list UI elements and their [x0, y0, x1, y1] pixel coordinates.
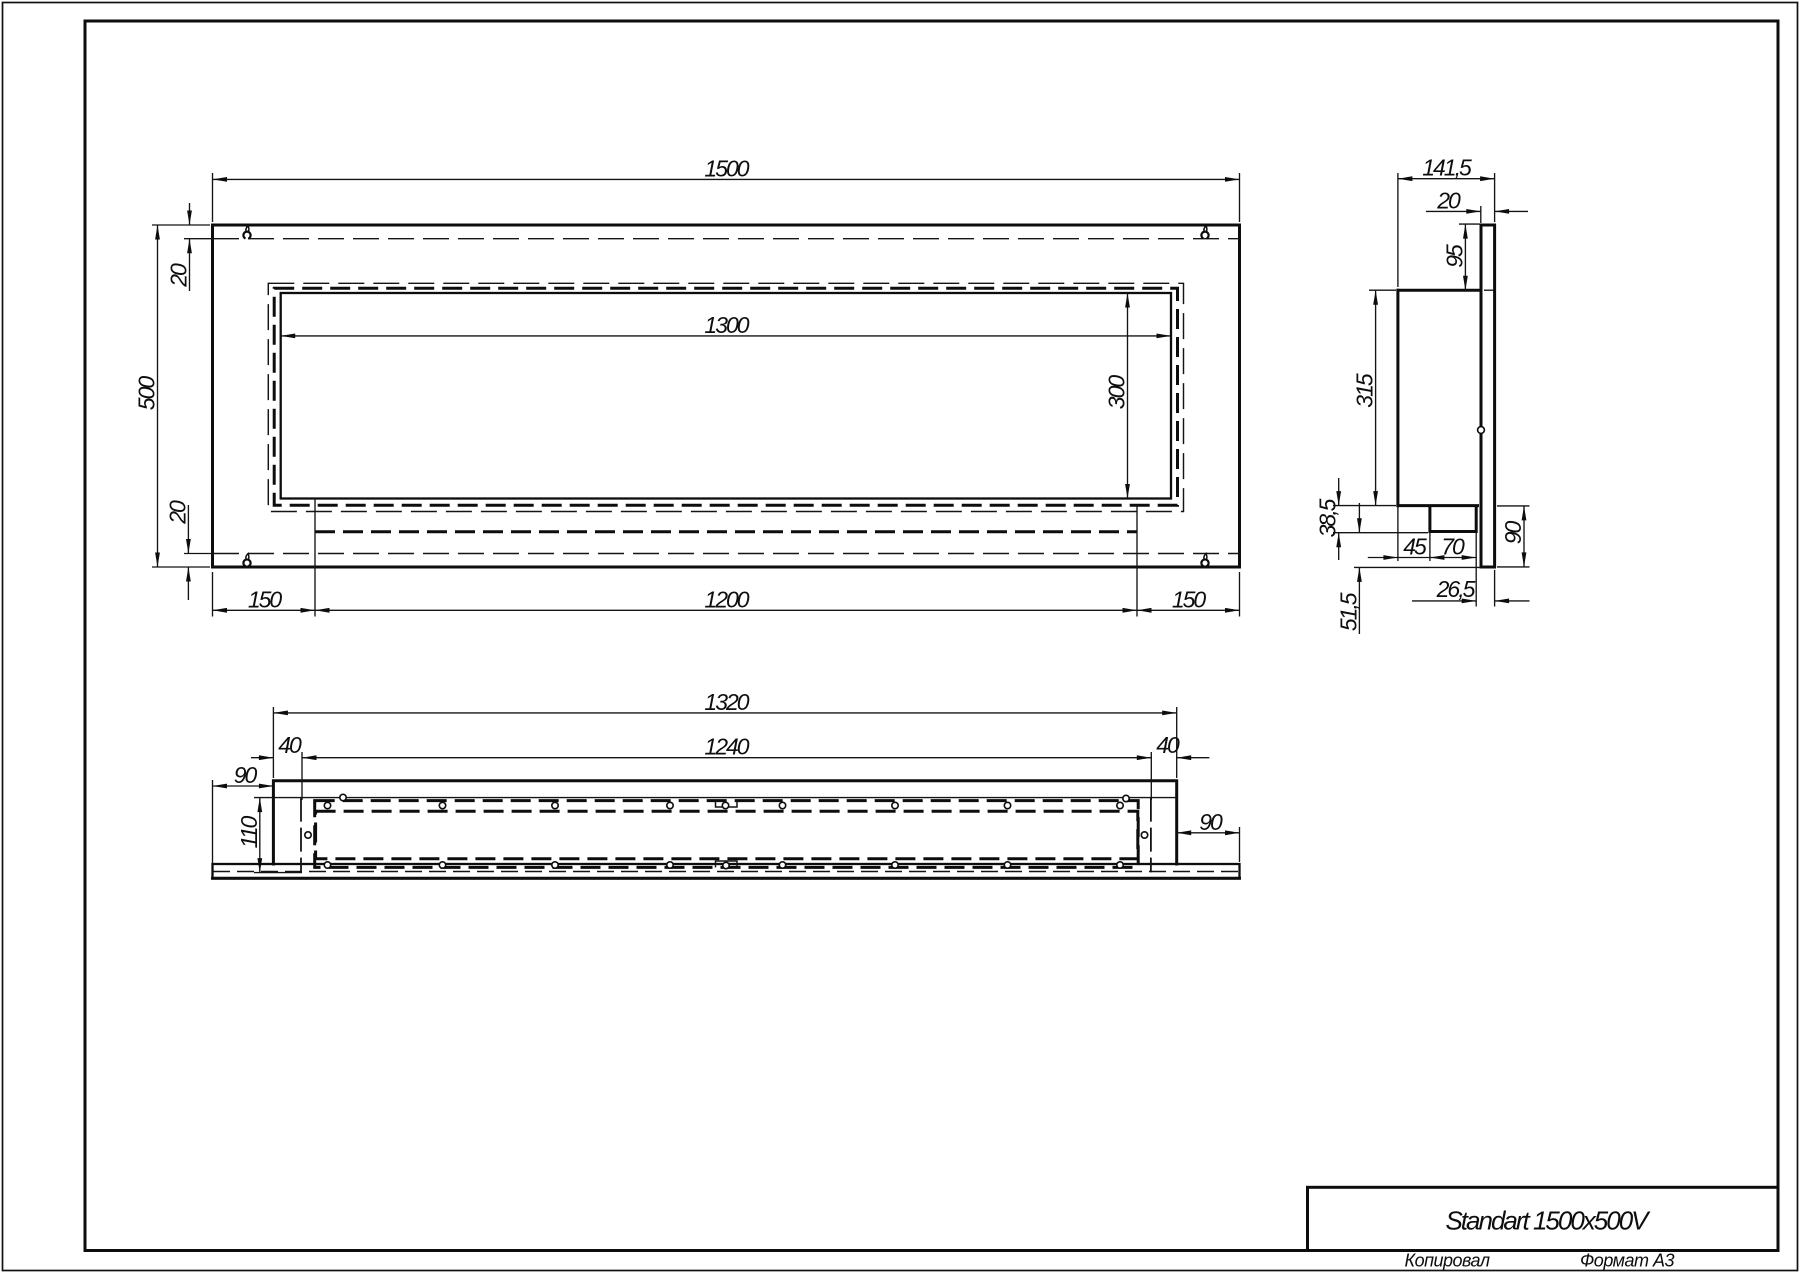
svg-text:38,5: 38,5	[1315, 498, 1341, 537]
svg-text:95: 95	[1441, 244, 1467, 268]
svg-text:315: 315	[1352, 373, 1378, 408]
svg-text:20: 20	[166, 263, 192, 288]
svg-text:1500: 1500	[704, 155, 749, 181]
svg-text:20: 20	[164, 500, 190, 525]
svg-text:110: 110	[236, 815, 262, 848]
svg-text:300: 300	[1104, 375, 1130, 410]
svg-text:500: 500	[134, 376, 160, 411]
svg-text:70: 70	[1441, 534, 1465, 560]
svg-text:90: 90	[1500, 521, 1526, 545]
svg-text:150: 150	[1172, 586, 1207, 612]
svg-text:40: 40	[278, 732, 302, 758]
svg-text:20: 20	[1436, 187, 1461, 213]
svg-text:90: 90	[1199, 809, 1223, 835]
svg-text:Копировал: Копировал	[1404, 1251, 1489, 1271]
svg-text:51,5: 51,5	[1335, 592, 1361, 631]
svg-text:Standart 1500x500V: Standart 1500x500V	[1445, 1206, 1651, 1236]
svg-text:Формат А3: Формат А3	[1580, 1251, 1674, 1271]
svg-text:1200: 1200	[704, 586, 749, 612]
svg-text:26,5: 26,5	[1436, 576, 1476, 602]
svg-text:1300: 1300	[704, 312, 749, 338]
svg-text:1240: 1240	[704, 734, 749, 760]
svg-text:90: 90	[234, 762, 258, 788]
svg-text:1320: 1320	[704, 689, 749, 715]
svg-text:141,5: 141,5	[1422, 155, 1472, 181]
svg-text:40: 40	[1156, 732, 1180, 758]
svg-text:150: 150	[248, 586, 283, 612]
svg-text:45: 45	[1403, 534, 1427, 560]
